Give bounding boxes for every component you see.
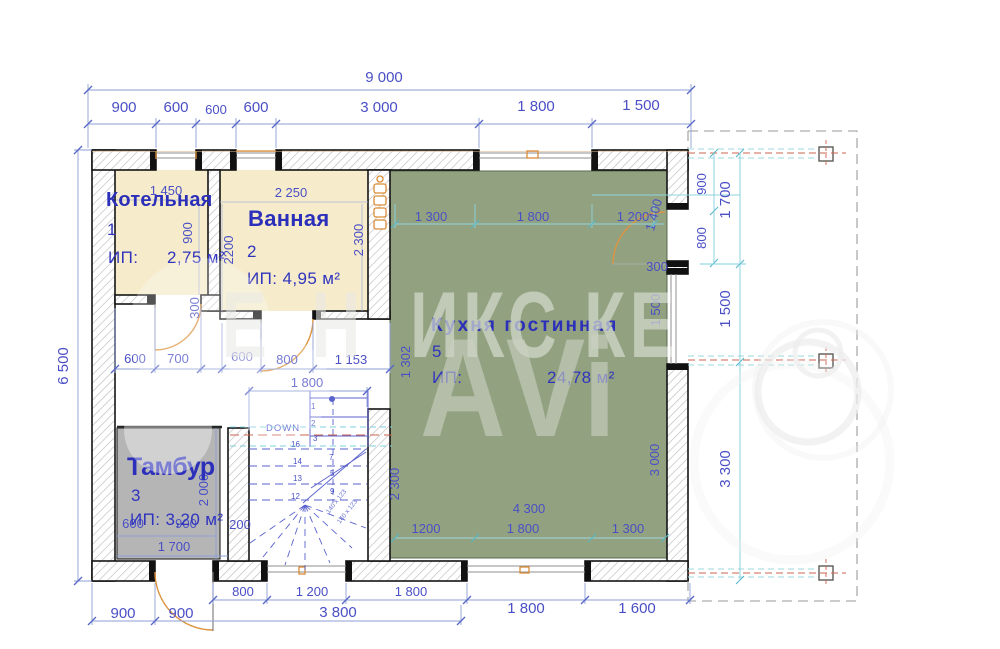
svg-text:ИП: 3,20 м²: ИП: 3,20 м² bbox=[130, 510, 223, 529]
svg-text:9: 9 bbox=[330, 487, 335, 496]
svg-text:1 300: 1 300 bbox=[612, 521, 645, 536]
svg-text:1 800: 1 800 bbox=[395, 584, 428, 599]
svg-text:1 800: 1 800 bbox=[507, 521, 540, 536]
svg-text:9 000: 9 000 bbox=[365, 69, 403, 86]
svg-text:1 500: 1 500 bbox=[717, 290, 734, 328]
svg-text:1 800: 1 800 bbox=[517, 98, 555, 115]
svg-text:1 200: 1 200 bbox=[296, 584, 329, 599]
svg-text:Ванная: Ванная bbox=[248, 206, 330, 231]
svg-text:АVi: АVi bbox=[420, 309, 616, 466]
svg-text:1 600: 1 600 bbox=[618, 600, 656, 617]
svg-text:1 500: 1 500 bbox=[622, 97, 660, 114]
svg-text:300: 300 bbox=[646, 259, 668, 274]
svg-text:6 500: 6 500 bbox=[55, 347, 72, 385]
svg-text:4 300: 4 300 bbox=[513, 501, 546, 516]
svg-text:900: 900 bbox=[180, 222, 195, 244]
svg-text:3 000: 3 000 bbox=[647, 444, 662, 477]
svg-text:7: 7 bbox=[329, 453, 334, 462]
svg-text:Котельная: Котельная bbox=[106, 189, 213, 211]
svg-text:900: 900 bbox=[168, 605, 193, 622]
svg-text:3: 3 bbox=[131, 486, 141, 505]
svg-text:3 300: 3 300 bbox=[717, 450, 734, 488]
svg-text:ЕН: ЕН bbox=[222, 273, 405, 377]
svg-text:600: 600 bbox=[205, 102, 227, 117]
svg-text:16: 16 bbox=[291, 440, 300, 449]
svg-text:3 800: 3 800 bbox=[319, 604, 357, 621]
svg-text:2: 2 bbox=[247, 242, 257, 261]
svg-text:14: 14 bbox=[293, 457, 302, 466]
svg-text:600: 600 bbox=[243, 99, 268, 116]
svg-text:1 800: 1 800 bbox=[517, 209, 550, 224]
svg-text:2 250: 2 250 bbox=[275, 185, 308, 200]
svg-text:800: 800 bbox=[694, 227, 709, 249]
svg-text:900: 900 bbox=[110, 605, 135, 622]
svg-text:2 300: 2 300 bbox=[387, 468, 402, 501]
svg-text:1 700: 1 700 bbox=[158, 539, 191, 554]
svg-text:1 300: 1 300 bbox=[415, 209, 448, 224]
svg-text:1: 1 bbox=[107, 220, 117, 239]
svg-text:3 000: 3 000 bbox=[360, 99, 398, 116]
svg-text:900: 900 bbox=[111, 99, 136, 116]
svg-text:5: 5 bbox=[330, 469, 335, 478]
svg-text:900: 900 bbox=[694, 173, 709, 195]
svg-text:ИП:: ИП: bbox=[108, 248, 138, 267]
svg-text:13: 13 bbox=[293, 474, 302, 483]
svg-text:1 800: 1 800 bbox=[507, 600, 545, 617]
svg-text:12: 12 bbox=[291, 492, 300, 501]
svg-text:2 300: 2 300 bbox=[351, 224, 366, 257]
svg-text:600: 600 bbox=[163, 99, 188, 116]
svg-text:1 700: 1 700 bbox=[717, 181, 734, 219]
svg-text:800: 800 bbox=[232, 584, 254, 599]
svg-text:1200: 1200 bbox=[412, 521, 441, 536]
svg-text:200: 200 bbox=[229, 517, 251, 532]
